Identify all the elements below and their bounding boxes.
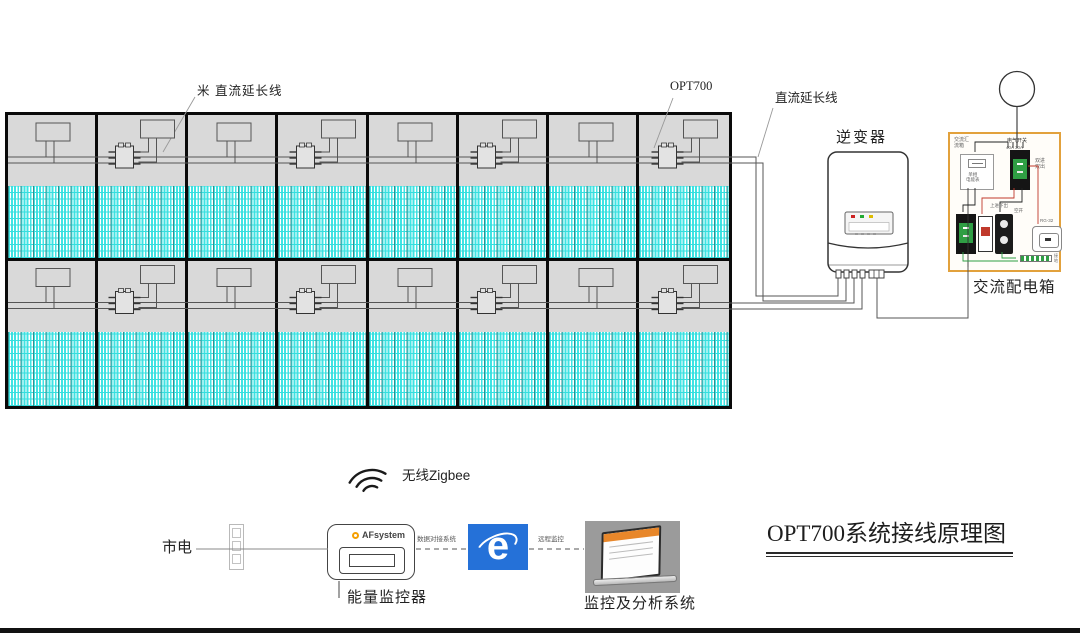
dc-wire-3 xyxy=(729,278,854,303)
title-underline xyxy=(766,552,1013,557)
monitor-brand: AFsystem xyxy=(362,531,405,541)
pv-panel xyxy=(8,261,98,407)
dc-wire-1 xyxy=(729,157,838,296)
pv-cell-area xyxy=(459,332,546,407)
pv-panel xyxy=(549,261,639,407)
pv-array xyxy=(5,112,732,409)
pv-junction-area xyxy=(278,261,365,332)
pv-junction-area xyxy=(98,261,185,332)
dc-wire-4 xyxy=(729,278,862,309)
pv-panel xyxy=(459,261,549,407)
pv-junction-area xyxy=(639,261,729,332)
ie-browser-icon: e xyxy=(468,524,528,570)
laptop-screen xyxy=(601,525,661,583)
pv-panel xyxy=(369,261,459,407)
acbox-switch-label: 电气开关 xyxy=(1007,138,1027,144)
label-link-monitor-ie: 数据对接系统 xyxy=(417,536,456,543)
label-link-ie-pc: 远程监控 xyxy=(538,536,564,543)
pv-cell-area xyxy=(8,332,95,407)
pv-panel xyxy=(98,115,188,261)
mains-plug-device xyxy=(229,524,244,570)
analysis-system-image xyxy=(585,521,680,593)
label-inverter: 逆变器 xyxy=(836,130,887,147)
diagram-canvas: 米 直流延长线 OPT700 直流延长线 逆变器 Solis 5kW 电网 交流… xyxy=(0,0,1080,633)
pv-cell-area xyxy=(278,332,365,407)
pv-junction-area xyxy=(98,115,185,186)
label-opt700: OPT700 xyxy=(670,80,712,94)
pv-junction-area xyxy=(459,115,546,186)
pv-panel xyxy=(8,115,98,261)
label-dc-extension-top: 米 直流延长线 xyxy=(197,85,282,99)
afsystem-logo-icon xyxy=(352,532,359,539)
pv-panel xyxy=(549,115,639,261)
label-mains: 市电 xyxy=(162,540,192,557)
socket-block xyxy=(995,214,1013,254)
dc-wire-2 xyxy=(729,163,846,301)
pv-junction-area xyxy=(369,115,456,186)
energy-monitor: AFsystem xyxy=(327,524,415,580)
inverter-brand: Solis xyxy=(830,171,906,189)
pv-cell-area xyxy=(549,332,636,407)
ground-terminal-strip xyxy=(1020,255,1052,262)
pv-cell-area xyxy=(98,332,185,407)
pv-cell-area xyxy=(639,186,729,258)
pv-junction-area xyxy=(278,115,365,186)
pv-junction-area xyxy=(188,261,275,332)
pv-panel xyxy=(459,115,549,261)
pv-junction-area xyxy=(8,115,95,186)
pv-panel xyxy=(278,115,368,261)
pv-panel xyxy=(188,115,278,261)
breaker-top xyxy=(1010,150,1030,190)
bottom-bar xyxy=(0,628,1080,633)
pv-cell-area xyxy=(369,332,456,407)
pv-cell-area xyxy=(369,186,456,258)
pv-junction-area xyxy=(8,261,95,332)
ground-label: 接地 xyxy=(1054,254,1059,264)
pv-cell-area xyxy=(459,186,546,258)
pv-cell-area xyxy=(188,186,275,258)
pv-junction-area xyxy=(459,261,546,332)
diagram-title: OPT700系统接线原理图 xyxy=(767,521,1006,546)
wall-socket xyxy=(1032,226,1062,252)
kongkai-label: 空开 xyxy=(1014,208,1023,213)
label-zigbee: 无线Zigbee xyxy=(402,469,470,484)
cluster-label: 上进下出 xyxy=(990,203,1008,208)
acbox-corner-label: 交流汇 流箱 xyxy=(954,137,969,149)
pv-panel xyxy=(98,261,188,407)
energy-meter-label: 单相 电能表 xyxy=(966,172,980,183)
pv-panel xyxy=(639,115,729,261)
pv-cell-area xyxy=(98,186,185,258)
ac-wire xyxy=(877,267,968,318)
pv-junction-area xyxy=(188,115,275,186)
dual-io-label: 双进 双出 xyxy=(1035,158,1045,170)
label-ac-box: 交流配电箱 xyxy=(973,279,1056,296)
pv-cell-area xyxy=(8,186,95,258)
label-energy-monitor: 能量监控器 xyxy=(347,590,427,607)
pv-junction-area xyxy=(639,115,729,186)
label-analysis-system: 监控及分析系统 xyxy=(584,596,696,613)
pv-junction-area xyxy=(549,115,636,186)
pv-junction-area xyxy=(369,261,456,332)
pv-panel xyxy=(188,261,278,407)
breaker-leakage xyxy=(978,216,993,252)
pv-panel xyxy=(369,115,459,261)
inverter-power: 5kW xyxy=(830,191,906,203)
pv-cell-area xyxy=(549,186,636,258)
breaker-green xyxy=(956,214,976,254)
socket-model-label: RG-32 xyxy=(1040,218,1053,223)
leader-dc-ext-right xyxy=(758,108,773,157)
zigbee-wifi-icon xyxy=(348,466,388,493)
pv-junction-area xyxy=(549,261,636,332)
pv-panel xyxy=(278,261,368,407)
grid-label: 电网 xyxy=(1000,83,1034,96)
monitor-screen xyxy=(339,547,405,574)
label-dc-extension-right: 直流延长线 xyxy=(775,92,838,106)
pv-cell-area xyxy=(639,332,729,407)
ac-distribution-box: 交流汇 流箱 电气开关 40A 30A 单相 电能表 双进 双出 上进下出 空开… xyxy=(948,132,1061,272)
pv-cell-area xyxy=(188,332,275,407)
pv-panel xyxy=(639,261,729,407)
pv-cell-area xyxy=(278,186,365,258)
energy-meter-screen xyxy=(968,159,986,168)
